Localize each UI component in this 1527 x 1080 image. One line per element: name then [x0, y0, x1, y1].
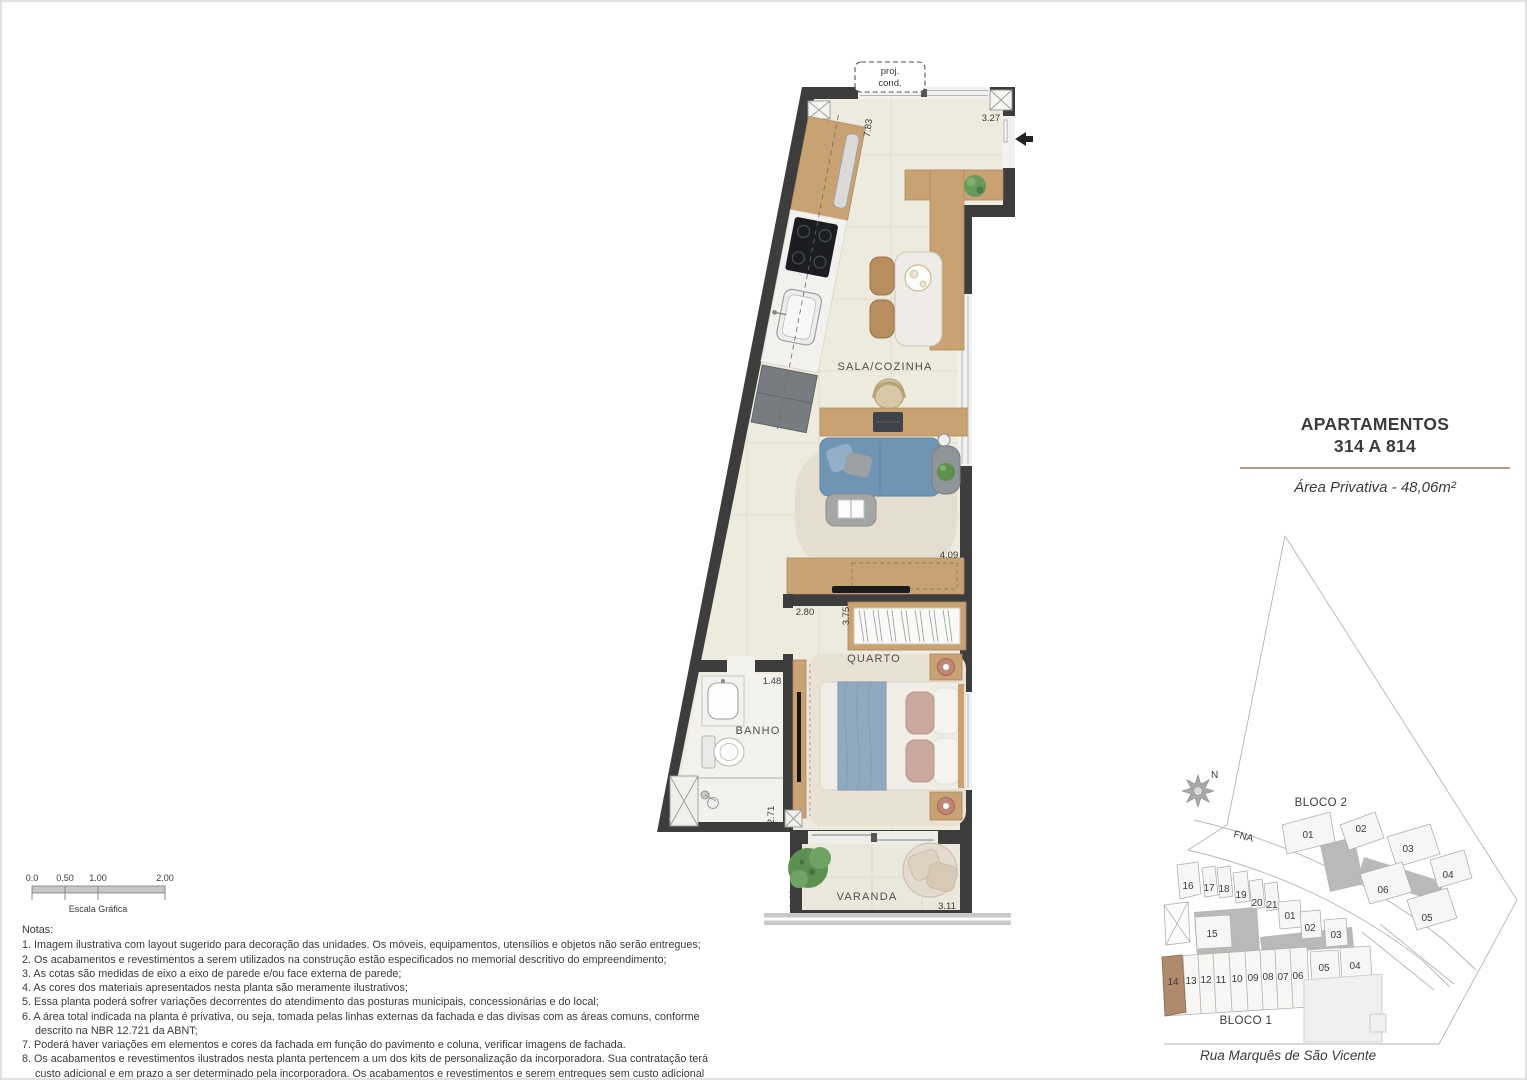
- dim-quarto-width: 2.80: [796, 607, 815, 618]
- unit-label: 11: [1216, 975, 1227, 986]
- note-item: 8. Os acabamentos e revestimentos ilustr…: [22, 1052, 727, 1080]
- floor-lamp-icon: [938, 434, 950, 446]
- tv-icon: [797, 692, 801, 782]
- unit-label: 05: [1421, 913, 1433, 924]
- compass-icon: N: [1182, 770, 1218, 807]
- pillow: [906, 692, 934, 734]
- proj-cond-line1: proj.: [881, 66, 899, 77]
- bloco2-unit-04: [1430, 850, 1472, 888]
- bed: [820, 682, 964, 790]
- unit-label: 18: [1218, 884, 1230, 895]
- shaft-top-right: [990, 90, 1012, 110]
- scale-tick-200: 2.00: [156, 873, 174, 883]
- pillow: [934, 738, 958, 784]
- unit-label: 10: [1231, 974, 1243, 985]
- balcony-railing: [764, 913, 1011, 918]
- room-label-varanda: VARANDA: [837, 891, 898, 903]
- plant-icon: [964, 175, 986, 197]
- unit-label: 02: [1355, 824, 1367, 835]
- pillow: [934, 688, 958, 734]
- room-label-banho: BANHO: [735, 725, 780, 737]
- room-label-quarto: QUARTO: [847, 653, 901, 665]
- proj-cond-line2: cond.: [878, 78, 901, 89]
- dim-sala-right: 4.09: [940, 550, 959, 561]
- balcony-railing: [764, 921, 1011, 926]
- page-title: APARTAMENTOS: [1240, 414, 1510, 436]
- bloco1-label: BLOCO 1: [1220, 1015, 1273, 1027]
- unit-label: 07: [1277, 972, 1289, 983]
- toilet: [702, 736, 744, 768]
- dim-banho-width: 1.48: [763, 676, 782, 687]
- note-item: 1. Imagem ilustrativa com layout sugerid…: [22, 938, 727, 952]
- unit-label-highlighted: 14: [1167, 977, 1179, 988]
- neighbor-building: [1370, 1014, 1386, 1032]
- bathroom-door: [727, 656, 755, 674]
- bloco2-label: BLOCO 2: [1295, 797, 1348, 809]
- dim-banho-depth: 2.71: [766, 806, 777, 825]
- scale-tick-0: 0.0: [26, 873, 39, 883]
- tv-icon: [832, 586, 910, 593]
- unit-label: 01: [1302, 830, 1314, 841]
- nightstand: [930, 654, 962, 680]
- dim-varanda-width: 3.11: [938, 901, 956, 912]
- unit-label: 03: [1330, 930, 1342, 941]
- unit-label: 13: [1185, 976, 1197, 987]
- scale-tick-050: 0.50: [56, 873, 74, 883]
- floor-plan-sheet: proj. cond. SALA/COZINHA QUARTO BANHO VA…: [0, 0, 1527, 1080]
- unit-label: 03: [1402, 844, 1414, 855]
- unit-label: 20: [1251, 898, 1263, 909]
- title-divider: [1240, 467, 1510, 469]
- notes-block: Notas: 1. Imagem ilustrativa com layout …: [22, 923, 727, 1080]
- unit-label: 04: [1442, 870, 1454, 881]
- unit-range: 314 A 814: [1240, 436, 1510, 458]
- dim-varanda-depth: 1.41: [788, 890, 799, 909]
- title-block: APARTAMENTOS 314 A 814 Área Privativa - …: [1240, 414, 1510, 496]
- private-area-label: Área Privativa - 48,06m²: [1240, 479, 1510, 496]
- dining-chair: [870, 300, 894, 338]
- unit-label: 15: [1206, 929, 1218, 940]
- dim-entry: 3.27: [982, 113, 1001, 124]
- shaft-top-left: [808, 101, 830, 119]
- floor-plan: proj. cond. SALA/COZINHA QUARTO BANHO VA…: [587, 42, 1077, 942]
- unit-label: 06: [1377, 885, 1389, 896]
- shaft-bathroom: [670, 776, 698, 826]
- road-label: FNA: [1232, 829, 1254, 845]
- note-item: 5. Essa planta poderá sofrer variações d…: [22, 995, 727, 1009]
- note-item: 7. Poderá haver variações em elementos e…: [22, 1038, 727, 1052]
- unit-label: 12: [1200, 975, 1212, 986]
- tv-console: [783, 558, 972, 606]
- scale-tick-100: 1.00: [89, 873, 107, 883]
- room-label-sala: SALA/COZINHA: [837, 361, 932, 373]
- vanity: [702, 676, 744, 726]
- unit-label: 06: [1292, 971, 1304, 982]
- entry-arrow-icon: [1015, 132, 1033, 146]
- unit-label: 04: [1349, 961, 1361, 972]
- note-item: 3. As cotas são medidas de eixo a eixo d…: [22, 967, 727, 981]
- scale-bar: 0.0 0.50 1.00 2.00 Escala Gráfica: [22, 870, 197, 916]
- street-label: Rua Marquês de São Vicente: [1200, 1048, 1376, 1063]
- unit-label: 02: [1304, 923, 1316, 934]
- living-area: [795, 434, 960, 569]
- unit-label: 05: [1318, 963, 1330, 974]
- unit-label: 19: [1235, 890, 1247, 901]
- unit-label: 08: [1262, 972, 1274, 983]
- hatched-area: [1164, 902, 1190, 945]
- scale-caption: Escala Gráfica: [69, 904, 128, 914]
- bloco1: [1162, 862, 1386, 1042]
- north-label: N: [1211, 770, 1218, 781]
- dim-quarto-depth: 3.75: [841, 607, 852, 626]
- nightstand: [930, 792, 962, 820]
- headboard: [958, 684, 964, 788]
- unit-label: 21: [1266, 900, 1278, 911]
- unit-label: 16: [1182, 881, 1194, 892]
- plant-icon: [937, 463, 955, 481]
- refrigerator: [751, 365, 817, 433]
- note-item: 2. Os acabamentos e revestimentos a sere…: [22, 953, 727, 967]
- proj-cond-callout: proj. cond.: [855, 62, 925, 92]
- bedroom-door: [781, 608, 795, 654]
- shaft-small: [785, 810, 802, 827]
- dining-chair: [870, 257, 894, 295]
- unit-label: 17: [1203, 883, 1215, 894]
- unit-label: 01: [1284, 911, 1296, 922]
- dim-kitchen-wall: 7.83: [862, 118, 875, 138]
- unit-label: 09: [1247, 973, 1259, 984]
- wardrobe: [848, 602, 966, 650]
- notes-heading: Notas:: [22, 923, 727, 937]
- note-item: 6. A área total indicada na planta é pri…: [22, 1010, 727, 1039]
- pillow: [906, 740, 934, 782]
- note-item: 4. As cores dos materiais apresentados n…: [22, 981, 727, 995]
- site-map: FNA N BLOCO 2 01 02 03 04 06 05: [1160, 530, 1527, 1078]
